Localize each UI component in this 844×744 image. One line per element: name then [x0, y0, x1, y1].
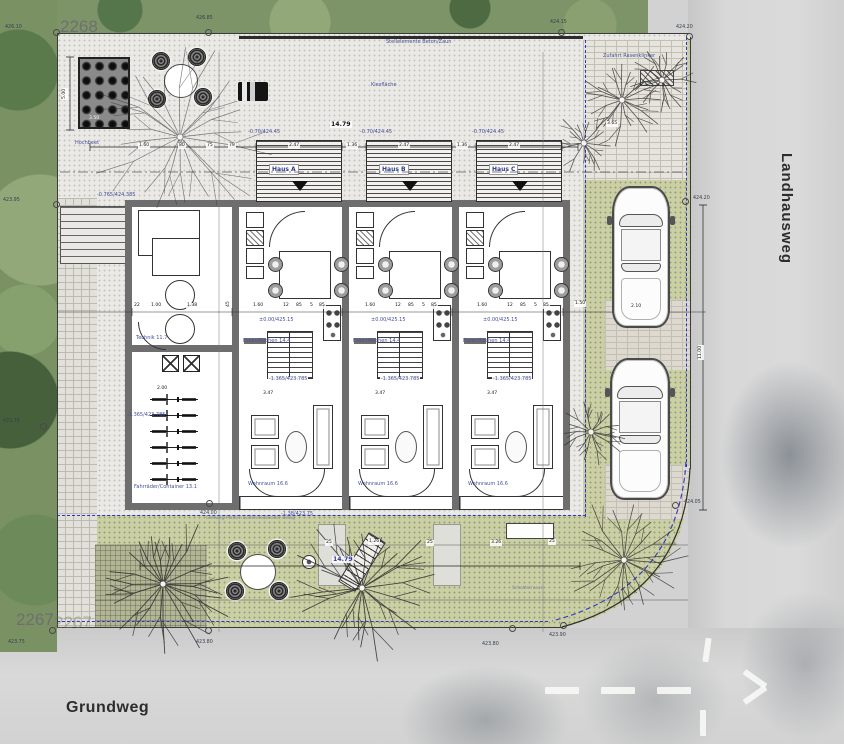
chair	[554, 283, 569, 298]
chair	[194, 88, 212, 106]
bicycle-icon	[146, 457, 204, 470]
stove	[433, 305, 451, 341]
kitchen-counter	[356, 230, 374, 246]
staircase	[487, 331, 533, 379]
chair	[228, 542, 246, 560]
building-wall-left	[125, 200, 132, 510]
stove	[543, 305, 561, 341]
kitchen-counter	[356, 248, 374, 264]
dining-table	[499, 251, 551, 299]
car-rear-window	[619, 435, 661, 444]
staircase	[377, 331, 423, 379]
car-mirror	[605, 388, 610, 397]
parked-car	[610, 358, 670, 500]
car-hood	[621, 278, 661, 320]
sofa	[251, 415, 279, 439]
chair	[270, 582, 288, 600]
paved-square	[95, 545, 207, 628]
staircase	[267, 331, 313, 379]
sofa	[533, 405, 553, 469]
kitchen-sink	[246, 266, 264, 279]
sofa	[423, 405, 443, 469]
bicycle-icon	[146, 425, 204, 438]
chair	[268, 257, 283, 272]
entrance-marker-icon	[292, 181, 308, 191]
kitchen-counter	[246, 248, 264, 264]
boundary-right	[690, 37, 691, 469]
technik-equipment	[152, 238, 200, 276]
chair	[152, 52, 170, 70]
unit-haus-c	[459, 207, 563, 503]
bicycle-icon	[146, 393, 204, 406]
entrance-marker-icon	[512, 181, 528, 191]
unit-haus-b	[349, 207, 452, 503]
chair	[554, 257, 569, 272]
door-swing	[379, 211, 415, 247]
garden-table-set	[146, 48, 216, 118]
chair	[334, 283, 349, 298]
chair	[488, 283, 503, 298]
parcel-number-bottom: 2267	[16, 611, 54, 628]
fence-line	[239, 36, 583, 39]
terrace-haus-b: Haus B	[366, 140, 452, 202]
lane-marking	[657, 687, 691, 694]
grill	[238, 82, 268, 101]
party-wall	[342, 200, 349, 510]
round-table	[164, 64, 198, 98]
car-mirror	[670, 388, 675, 397]
boundary-top	[57, 33, 690, 34]
kitchen-sink	[466, 266, 484, 279]
car-rear-window	[621, 263, 661, 272]
kitchen-counter	[246, 212, 264, 228]
driveway-rasenklinker	[583, 40, 687, 180]
setback-line	[585, 40, 586, 517]
chair	[444, 283, 459, 298]
street-name-landhausweg: Landhausweg	[779, 153, 794, 264]
setback-line	[57, 515, 586, 516]
lane-marking	[545, 687, 579, 694]
car-roof	[621, 229, 661, 261]
car-roof	[619, 401, 661, 433]
haus-label: Haus A	[269, 164, 299, 175]
sofa	[471, 415, 499, 439]
parcel-number-ghost: 2267	[54, 614, 92, 631]
boundary-bottom	[57, 627, 563, 628]
bench	[506, 523, 554, 539]
car-windshield	[617, 386, 663, 399]
boundary-left	[57, 33, 58, 628]
chair	[188, 48, 206, 66]
door-swing	[297, 469, 325, 497]
exterior-stairs	[60, 206, 126, 264]
wall-stub	[464, 338, 486, 344]
coffee-table	[285, 431, 307, 463]
unit-haus-a	[239, 207, 342, 503]
door-swing	[359, 469, 387, 497]
haus-name: Haus B	[382, 166, 406, 173]
wing-divider-wall	[232, 200, 239, 510]
bicycle-icon	[146, 441, 204, 454]
glass-front	[459, 496, 563, 510]
chair	[226, 582, 244, 600]
kitchen-counter	[246, 230, 264, 246]
car-mirror	[670, 216, 675, 225]
terrace-haus-c: Haus C	[476, 140, 562, 202]
terrace-haus-a: Haus A	[256, 140, 342, 202]
parked-car	[612, 186, 670, 328]
shaft-box	[183, 355, 200, 372]
door-swing	[249, 469, 277, 497]
glass-front	[239, 496, 342, 510]
car-mirror	[607, 216, 612, 225]
building-wall-right	[563, 200, 570, 510]
chair	[488, 257, 503, 272]
car-windshield	[619, 214, 663, 227]
chair	[444, 257, 459, 272]
stool	[302, 555, 316, 569]
dining-table	[389, 251, 441, 299]
dining-table	[279, 251, 331, 299]
round-table	[240, 554, 276, 590]
car-hood	[619, 450, 661, 492]
bicycle-icon	[146, 473, 204, 486]
wall-stub	[244, 338, 266, 344]
setback-line	[57, 621, 548, 622]
kitchen-counter	[466, 230, 484, 246]
sofa	[471, 445, 499, 469]
shaft-box	[162, 355, 179, 372]
stove	[323, 305, 341, 341]
setback-line	[686, 37, 687, 467]
storage-tank	[165, 314, 195, 344]
storage-tank	[165, 280, 195, 310]
haus-label: Haus B	[379, 164, 409, 175]
chair	[268, 540, 286, 558]
sofa	[313, 405, 333, 469]
kitchen-counter	[466, 248, 484, 264]
wing-wall	[132, 345, 232, 352]
coffee-table	[505, 431, 527, 463]
lane-marking	[601, 687, 635, 694]
garden-table-set	[224, 540, 294, 604]
haus-name: Haus A	[272, 166, 296, 173]
parcel-number-top: 2268	[60, 18, 98, 35]
door-swing	[269, 211, 305, 247]
kitchen-counter	[356, 212, 374, 228]
sofa	[361, 415, 389, 439]
chair	[378, 257, 393, 272]
kitchen-sink	[356, 266, 374, 279]
terrace-pad	[433, 524, 461, 586]
door-swing	[489, 211, 525, 247]
haus-label: Haus C	[489, 164, 518, 175]
chair	[378, 283, 393, 298]
bicycle-parking	[146, 393, 204, 489]
lane-marking	[700, 710, 706, 736]
glass-front	[349, 496, 452, 510]
coffee-table	[395, 431, 417, 463]
chair	[268, 283, 283, 298]
wall-stub	[354, 338, 376, 344]
sofa	[251, 445, 279, 469]
entrance-marker-icon	[402, 181, 418, 191]
vegetation-strip-left	[0, 0, 57, 652]
street-name-grundweg: Grundweg	[66, 700, 149, 716]
bicycle-icon	[146, 409, 204, 422]
site-plan: Haus A Haus B Haus C	[0, 0, 844, 744]
chair	[334, 257, 349, 272]
road-grundweg	[0, 628, 844, 744]
door-swing	[407, 469, 435, 497]
party-wall	[452, 200, 459, 510]
bin-place	[640, 70, 674, 86]
sofa	[361, 445, 389, 469]
door-swing	[469, 469, 497, 497]
haus-name: Haus C	[492, 166, 515, 173]
door-swing	[517, 469, 545, 497]
raised-bed	[78, 57, 130, 129]
chair	[148, 90, 166, 108]
kitchen-counter	[466, 212, 484, 228]
